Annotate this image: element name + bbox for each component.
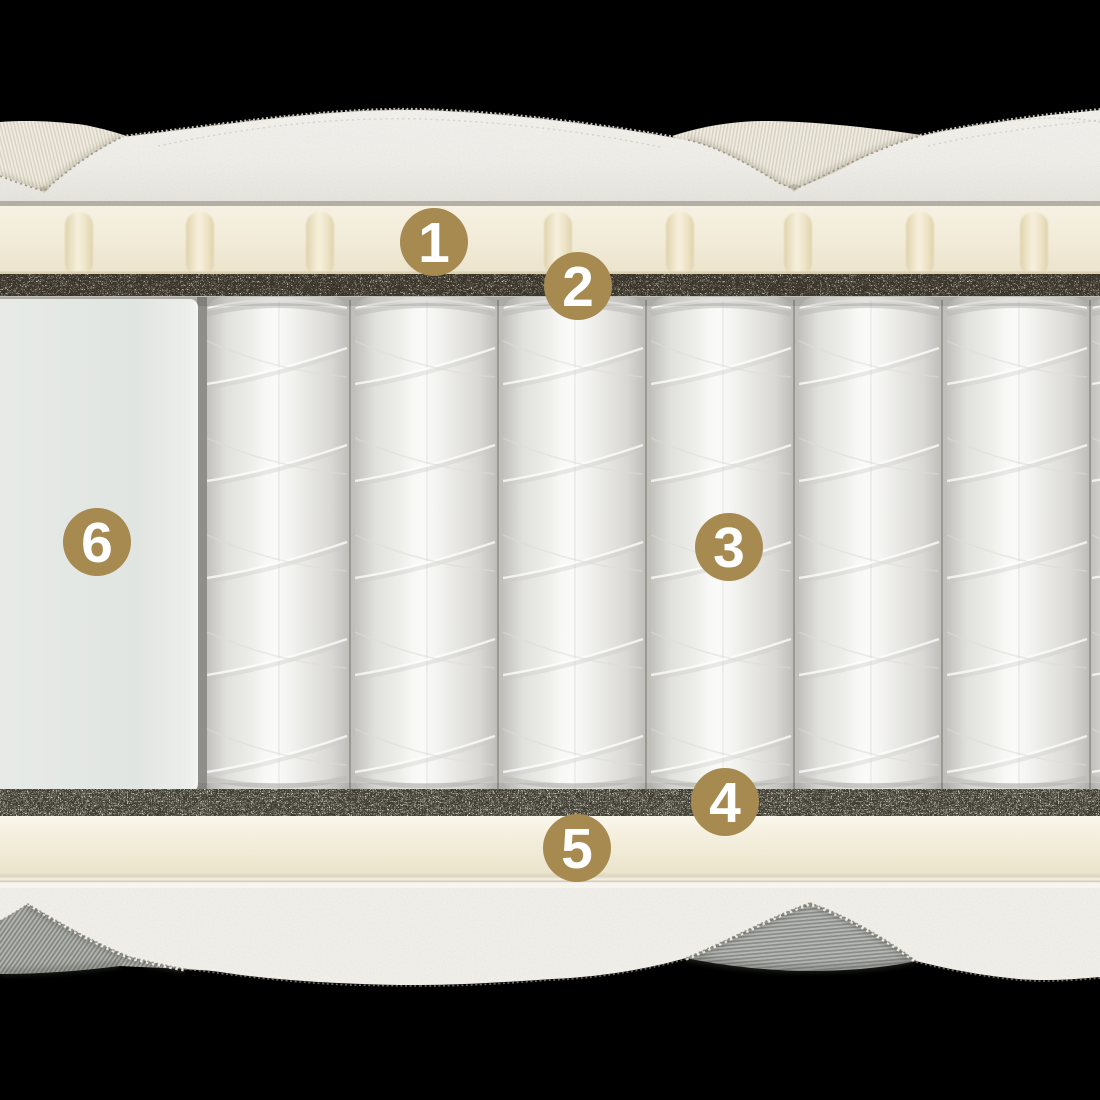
svg-text:5: 5	[561, 817, 593, 881]
svg-text:2: 2	[562, 255, 594, 319]
svg-text:6: 6	[81, 511, 113, 575]
svg-text:4: 4	[709, 771, 741, 835]
svg-text:1: 1	[418, 211, 450, 275]
svg-text:3: 3	[713, 516, 745, 580]
